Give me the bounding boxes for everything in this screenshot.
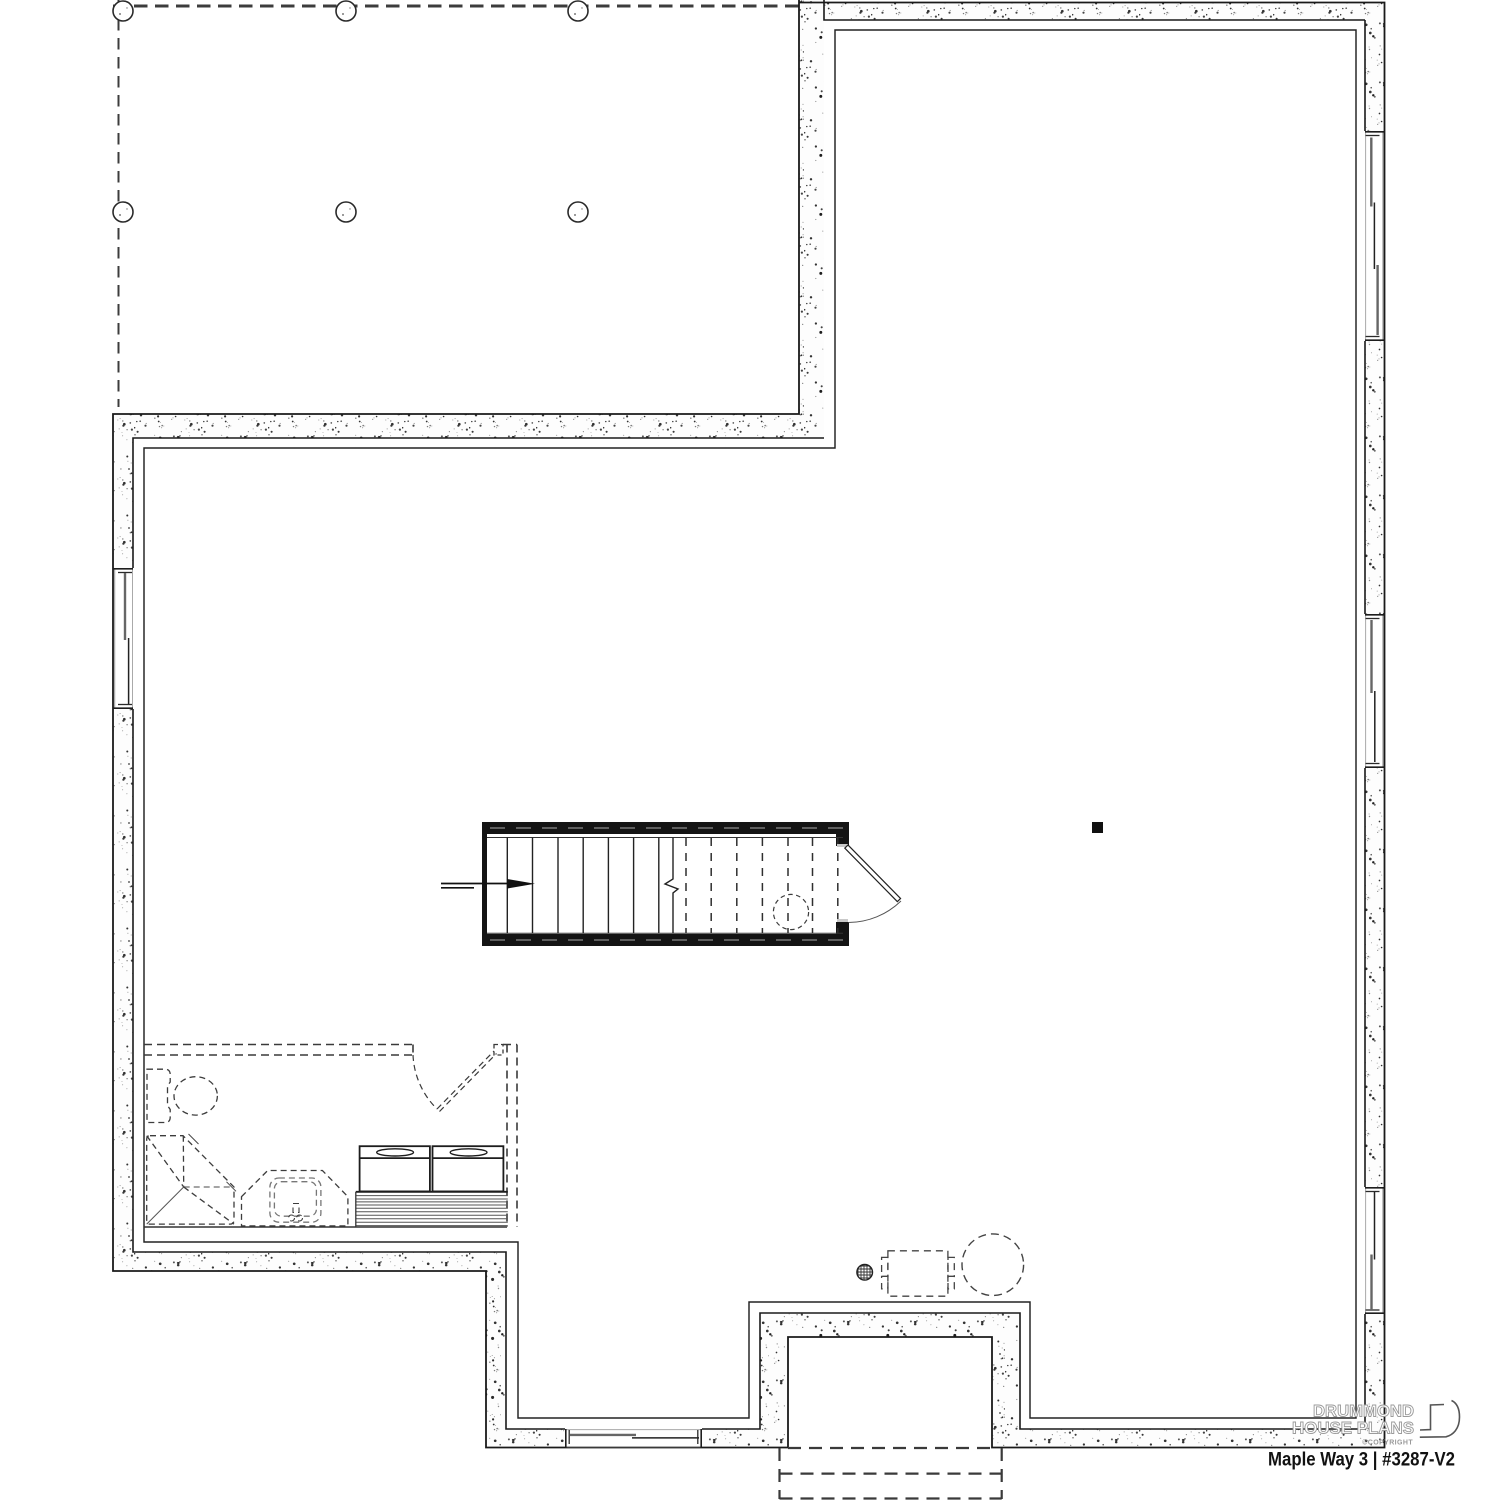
svg-text:DRUMMOND: DRUMMOND (1313, 1403, 1414, 1421)
svg-text:©COPYRIGHT: ©COPYRIGHT (1362, 1439, 1413, 1447)
svg-text:HOUSE PLANS: HOUSE PLANS (1292, 1420, 1414, 1438)
svg-text:Maple Way 3 | #3287-V2: Maple Way 3 | #3287-V2 (1268, 1449, 1455, 1471)
